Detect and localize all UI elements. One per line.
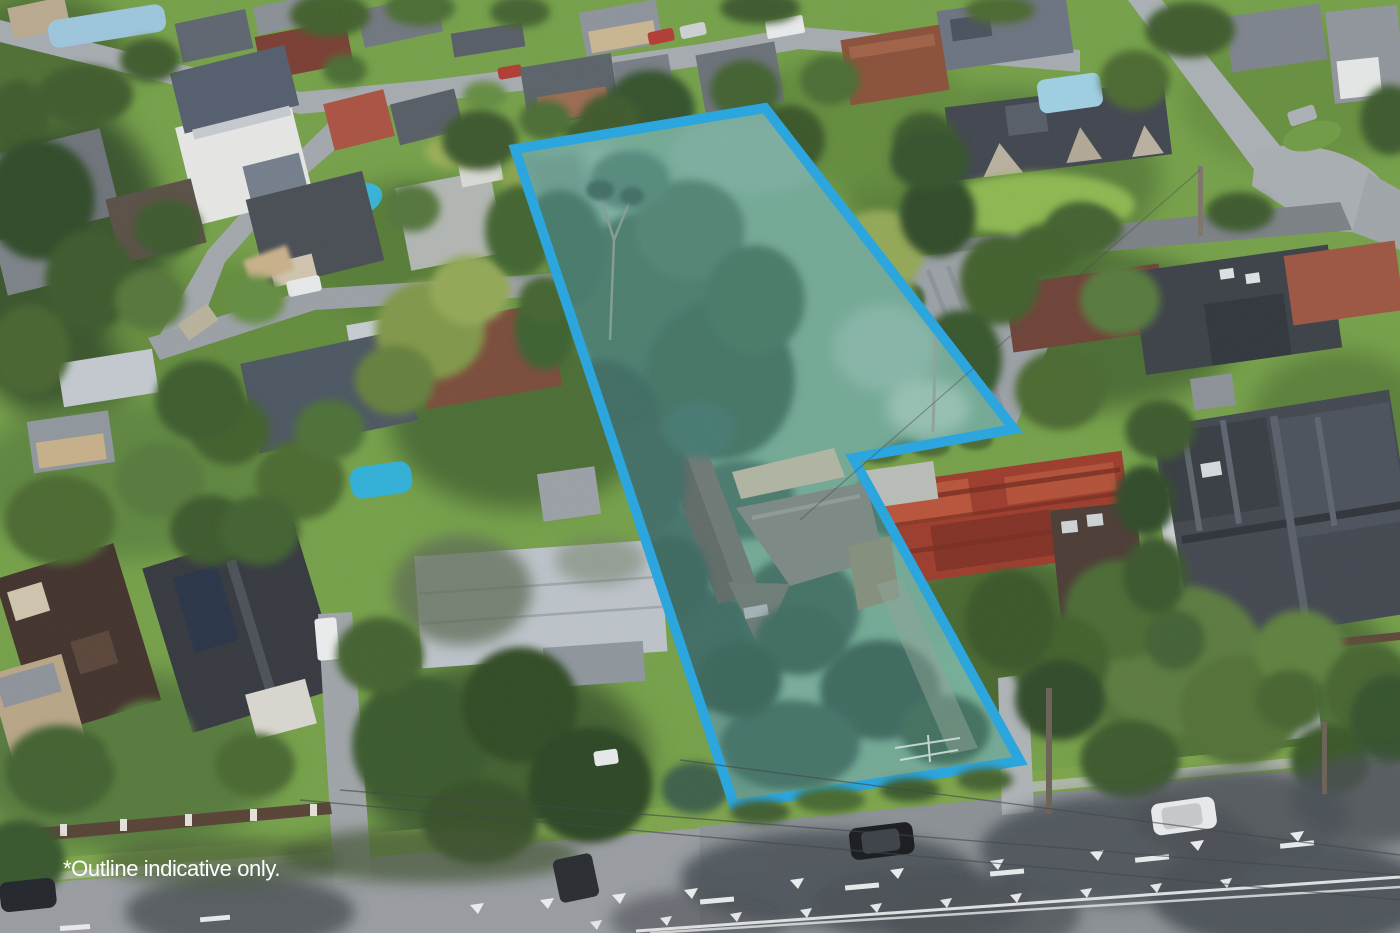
svg-text:*Outline indicative only.: *Outline indicative only. [63,856,280,881]
